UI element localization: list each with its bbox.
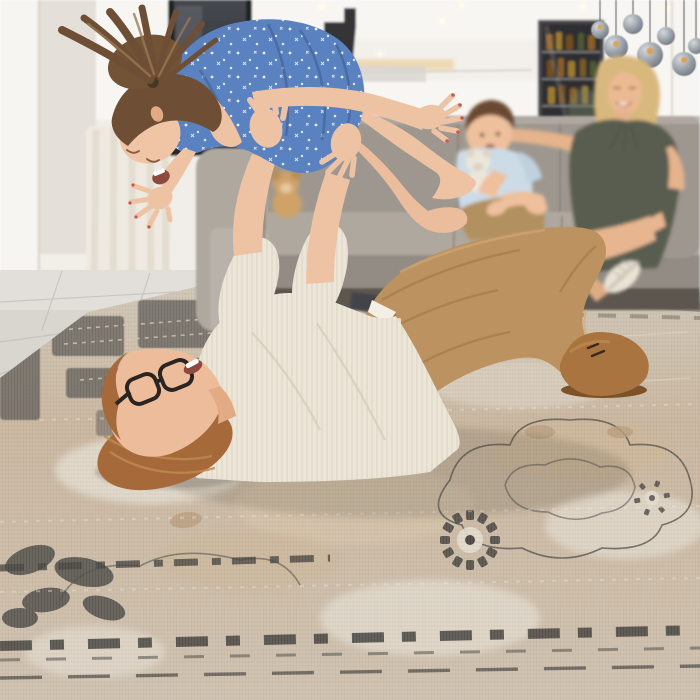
photo-family-living-room: [0, 0, 700, 700]
spotlight: [374, 48, 386, 60]
photo-canvas: [0, 0, 700, 700]
mother-face: [608, 72, 642, 114]
spotlight: [435, 13, 451, 29]
daughter-foot: [460, 177, 476, 189]
